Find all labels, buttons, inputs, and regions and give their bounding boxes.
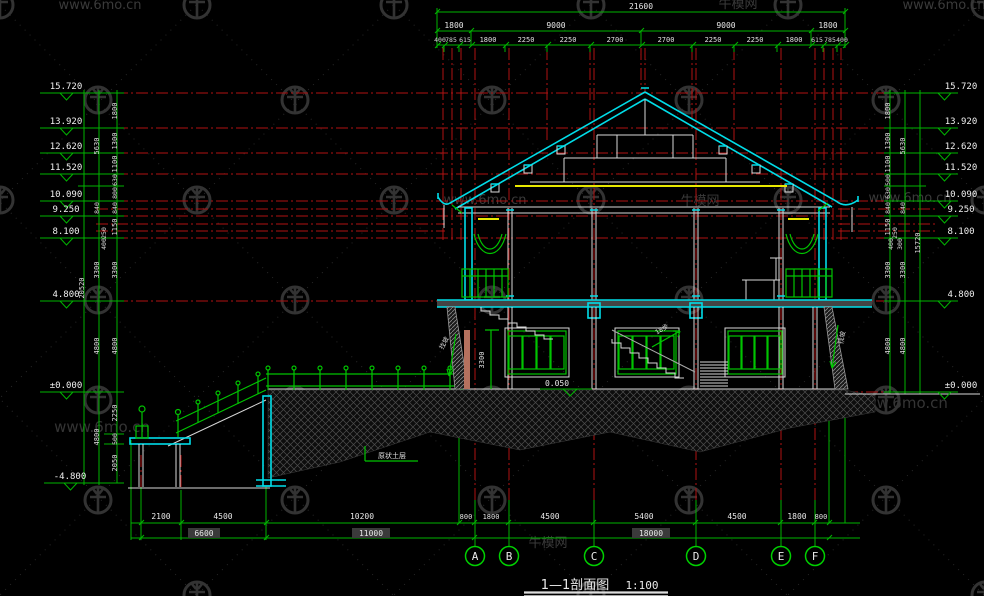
grid-bubble-b: B xyxy=(506,550,513,563)
level-label: -4.800 xyxy=(54,472,87,482)
cad-section-drawing: www.6mo.cn 牛模网 www.6mo.cn www.6mo.cn 牛模网… xyxy=(0,0,984,596)
dim-label: 2700 xyxy=(658,36,675,44)
dim-label: 2250 xyxy=(560,36,577,44)
dim-label: 4500 xyxy=(727,512,746,521)
dim-label: 4500 xyxy=(540,512,559,521)
dim-label: 5630 xyxy=(899,138,907,155)
dim-label: 615 xyxy=(811,36,823,44)
dim-label: 500 xyxy=(884,174,892,186)
window-group-3 xyxy=(725,328,785,377)
dim-label: 4500 xyxy=(213,512,232,521)
timber-column xyxy=(464,330,470,389)
slope-label: 找坡 xyxy=(437,335,451,351)
level-label: 8.100 xyxy=(52,227,79,237)
dim-label: 18000 xyxy=(639,529,663,538)
dim-label: 11000 xyxy=(359,529,383,538)
level-label: 9.250 xyxy=(52,205,79,215)
dim-label: 9000 xyxy=(546,21,565,30)
grid-bubble-d: D xyxy=(693,550,700,563)
dim-label: 2700 xyxy=(607,36,624,44)
bench xyxy=(742,258,782,300)
elevation-markers-right: 15.720 13.920 12.620 11.520 10.090 9.250… xyxy=(895,82,977,399)
level-label: 12.620 xyxy=(50,142,83,152)
dim-label: 2250 xyxy=(705,36,722,44)
level-label: 11.520 xyxy=(50,163,83,173)
dim-label: 630 xyxy=(111,174,119,186)
watermark-layer: www.6mo.cn 牛模网 www.6mo.cn www.6mo.cn 牛模网… xyxy=(0,0,984,596)
dim-label: 400 xyxy=(836,36,848,44)
dim-label: 4800 xyxy=(93,429,101,446)
watermark-text: www.6mo.cn xyxy=(58,0,141,13)
grid-bubble-e: E xyxy=(778,550,785,563)
level-label: 13.920 xyxy=(945,117,978,127)
dim-label: 1800 xyxy=(111,103,119,120)
level-label: 9.250 xyxy=(947,205,974,215)
dim-label: 2100 xyxy=(151,512,170,521)
level-label: 15.720 xyxy=(50,82,83,92)
level-label: 4.800 xyxy=(52,290,79,300)
watermark-text: 牛模网 xyxy=(718,0,757,12)
dim-label: 615 xyxy=(459,36,471,44)
dim-label: 2250 xyxy=(747,36,764,44)
dim-label: 3300 xyxy=(899,262,907,279)
upper-columns xyxy=(465,208,826,300)
level-label: 15.720 xyxy=(945,82,978,92)
dim-label: 250 xyxy=(100,227,108,239)
dim-label: 630 xyxy=(884,187,892,199)
dim-label: 785 xyxy=(445,36,457,44)
dim-label: 1800 xyxy=(483,513,500,521)
roof-truss xyxy=(530,99,760,182)
dim-label: 840 xyxy=(111,202,119,214)
title-text: 1—1剖面图 xyxy=(541,578,610,593)
dim-label: 3300 xyxy=(93,262,101,279)
soil-label: 原状土层 xyxy=(378,451,406,460)
dim-label: 5630 xyxy=(93,138,101,155)
dim-label: 3300 xyxy=(478,352,486,369)
dim-label: 2250 xyxy=(518,36,535,44)
level-label: 10.090 xyxy=(50,190,83,200)
dim-label: 1800 xyxy=(818,21,837,30)
dim-label: 3300 xyxy=(884,262,892,279)
dim-label: 4800 xyxy=(93,338,101,355)
balustrade-right xyxy=(786,269,832,297)
dim-label: 15720 xyxy=(914,232,922,253)
dim-label: 2250 xyxy=(111,405,119,422)
dim-label: 400 xyxy=(100,238,108,250)
dim-label: 800 xyxy=(815,513,828,521)
dim-label: 300 xyxy=(896,238,904,250)
level-label: 4.800 xyxy=(947,290,974,300)
dim-label: 1800 xyxy=(480,36,497,44)
watermark-text: www.6mo.cn xyxy=(868,191,951,206)
level-label: 12.620 xyxy=(945,142,978,152)
dim-label: 4800 xyxy=(111,338,119,355)
dim-label: 1300 xyxy=(111,133,119,150)
dim-label: 4800 xyxy=(899,338,907,355)
ground-layer xyxy=(128,389,980,488)
dim-label: 1800 xyxy=(444,21,463,30)
dim-label: 1150 xyxy=(111,219,119,236)
dim-label: 800 xyxy=(111,187,119,199)
dim-label: 2050 xyxy=(111,455,119,472)
dim-label: 250 xyxy=(891,227,899,239)
drawing-canvas: www.6mo.cn 牛模网 www.6mo.cn www.6mo.cn 牛模网… xyxy=(0,0,984,596)
grid-bubbles: A B C D E F xyxy=(466,547,825,566)
dim-label: 840 xyxy=(899,202,907,214)
dim-label: 9000 xyxy=(716,21,735,30)
dim-label: 21600 xyxy=(629,2,653,11)
earth-hatch xyxy=(268,390,875,478)
dim-label: 3300 xyxy=(111,262,119,279)
level-label: 13.920 xyxy=(50,117,83,127)
title-scale: 1:100 xyxy=(625,579,658,592)
dim-label: 840 xyxy=(884,202,892,214)
dim-label: 500 xyxy=(111,433,119,445)
dim-label: 1100 xyxy=(884,156,892,173)
level-label: 10.090 xyxy=(945,190,978,200)
level-label: ±0.000 xyxy=(50,381,83,391)
grid-bubble-a: A xyxy=(472,550,479,563)
dim-label: 6600 xyxy=(194,529,213,538)
ceiling-line xyxy=(478,186,809,219)
dim-label: 10200 xyxy=(350,512,374,521)
dim-label: 5400 xyxy=(634,512,653,521)
dim-label: 1800 xyxy=(786,36,803,44)
dim-label: 400 xyxy=(887,238,895,250)
dim-label: 1800 xyxy=(884,103,892,120)
arch-brackets xyxy=(474,234,818,254)
dim-label: 20520 xyxy=(78,277,86,298)
drawing-title: 1—1剖面图 1:100 xyxy=(524,578,668,595)
dim-label: 800 xyxy=(460,513,473,521)
grid-bubble-f: F xyxy=(812,550,819,563)
dim-label: 840 xyxy=(93,202,101,214)
level-label: 8.100 xyxy=(947,227,974,237)
level-label: 11.520 xyxy=(945,163,978,173)
grid-bubble-c: C xyxy=(591,550,598,563)
floor-level-label: 0.050 xyxy=(545,379,569,388)
window-group-2 xyxy=(615,328,679,377)
level-label: ±0.000 xyxy=(945,381,978,391)
stair-label: 18步 xyxy=(654,322,671,336)
dim-label: 4800 xyxy=(884,338,892,355)
dim-label: 1800 xyxy=(787,512,806,521)
dim-label: 1300 xyxy=(884,133,892,150)
watermark-text: www.6mo.cn xyxy=(902,0,984,13)
dim-label: 1100 xyxy=(111,156,119,173)
dim-label: 785 xyxy=(824,36,836,44)
bottom-dim-labels: 2100 4500 10200 800 1800 4500 5400 4500 … xyxy=(151,512,827,538)
